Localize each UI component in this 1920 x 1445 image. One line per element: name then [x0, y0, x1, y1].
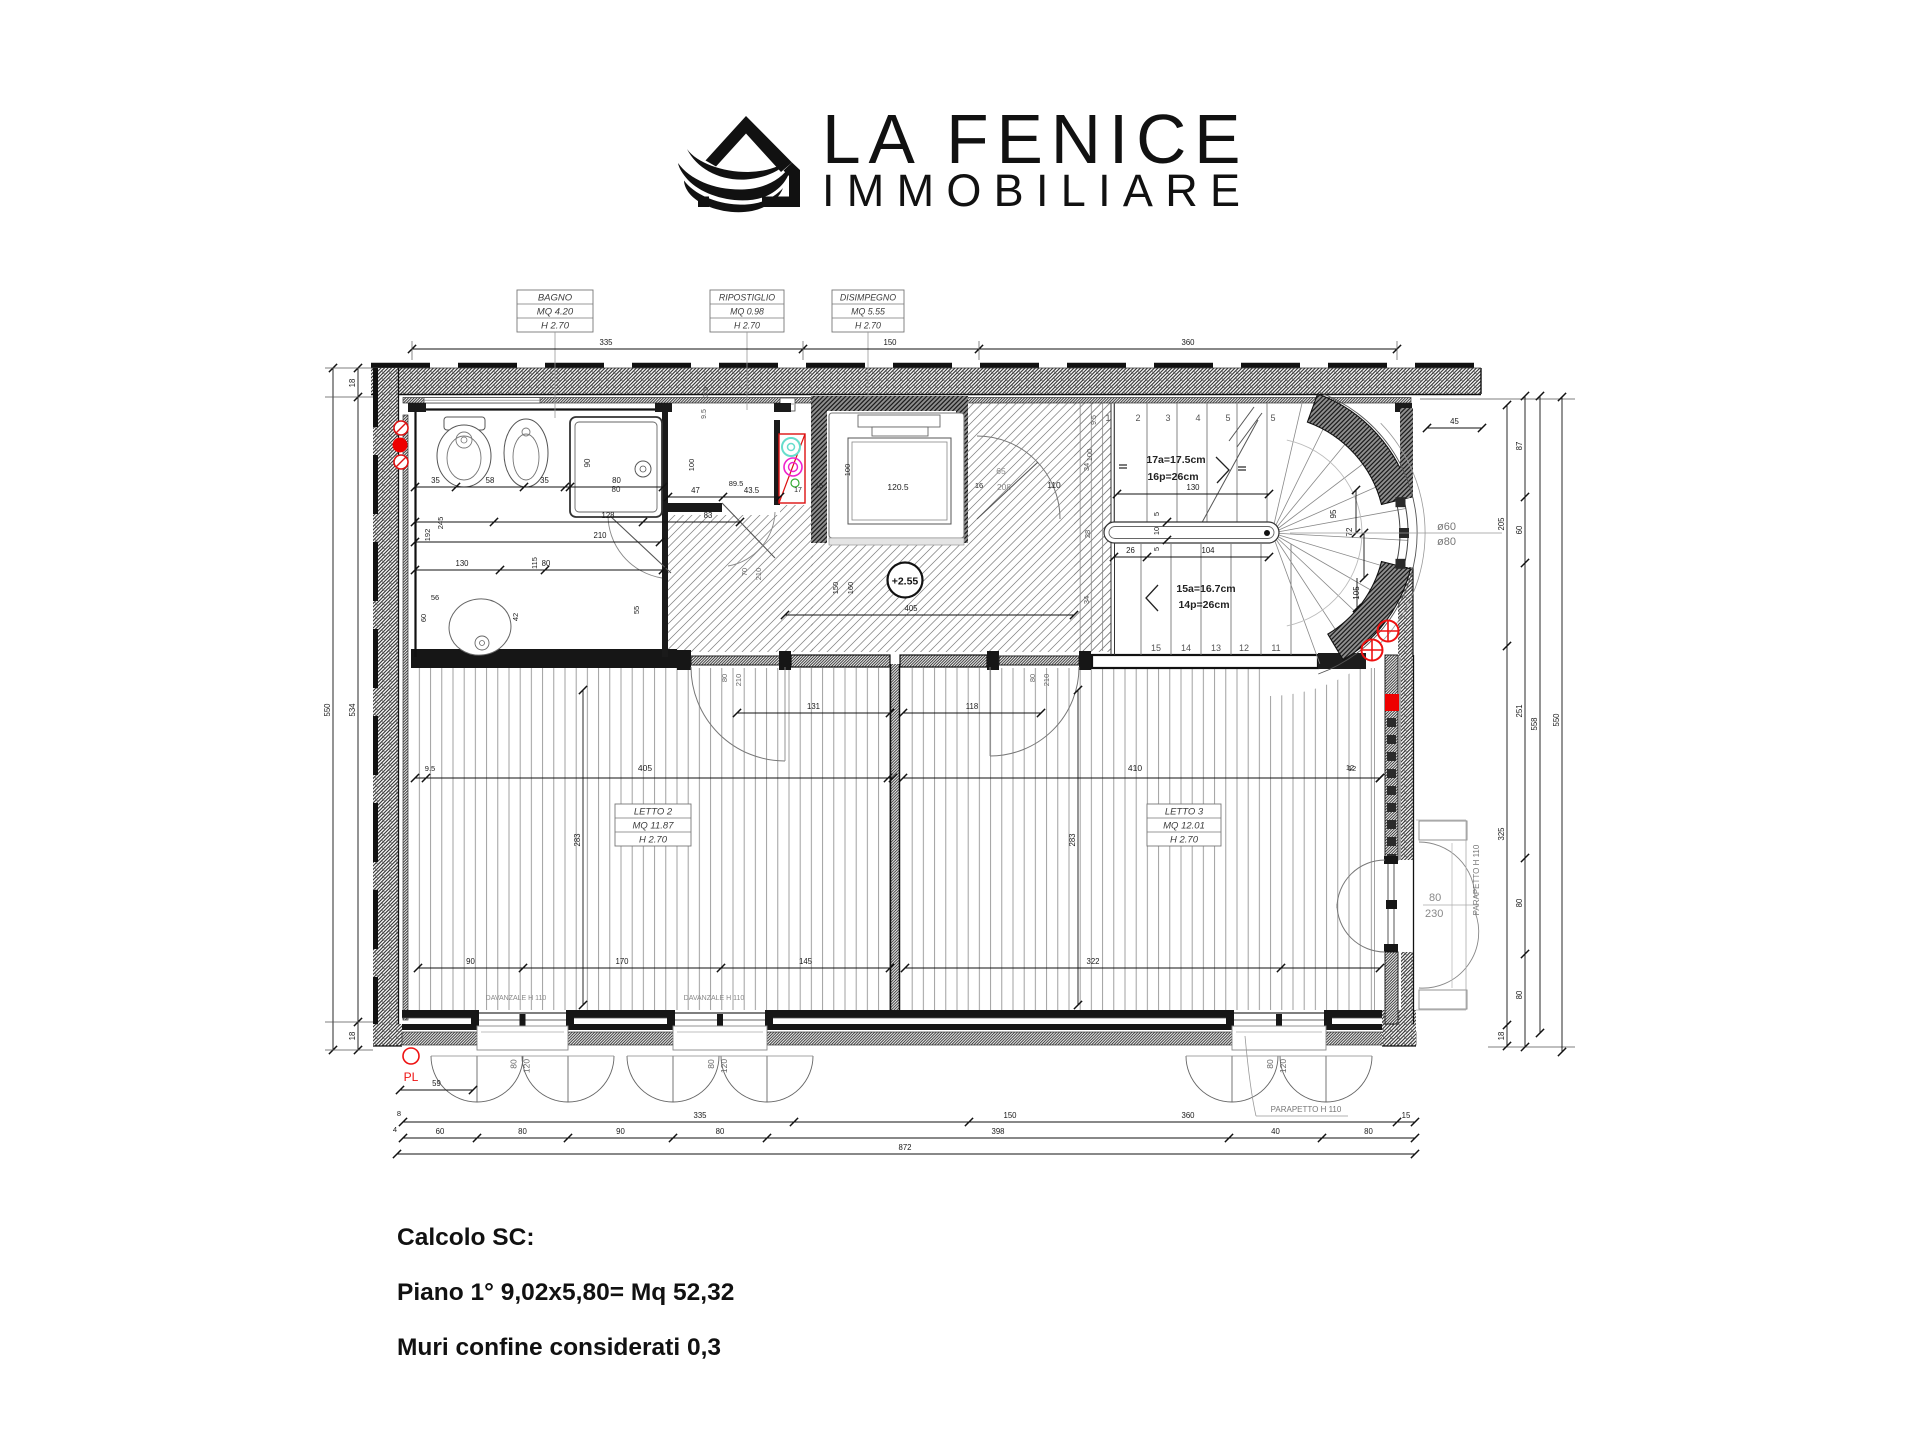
- svg-text:59: 59: [432, 1079, 441, 1088]
- svg-text:8: 8: [397, 1109, 401, 1118]
- svg-text:9.5: 9.5: [1091, 415, 1098, 425]
- svg-text:34: 34: [1082, 596, 1091, 604]
- svg-text:14p=26cm: 14p=26cm: [1178, 599, 1229, 611]
- svg-text:105: 105: [1352, 586, 1361, 600]
- svg-text:80: 80: [542, 559, 551, 568]
- svg-text:120: 120: [1278, 1059, 1288, 1073]
- svg-text:90: 90: [616, 1127, 625, 1136]
- svg-text:90: 90: [466, 957, 475, 966]
- svg-text:360: 360: [1181, 338, 1195, 347]
- svg-text:18: 18: [348, 379, 357, 388]
- svg-text:13: 13: [1211, 643, 1221, 653]
- svg-text:15a=16.7cm: 15a=16.7cm: [1176, 583, 1235, 595]
- svg-text:10: 10: [1152, 527, 1161, 535]
- svg-text:90: 90: [583, 458, 592, 467]
- svg-text:110: 110: [1047, 480, 1061, 490]
- svg-text:MQ 12.01: MQ 12.01: [1163, 821, 1205, 832]
- svg-text:335: 335: [693, 1111, 707, 1120]
- svg-text:60: 60: [1515, 525, 1524, 534]
- svg-text:325: 325: [1497, 827, 1506, 841]
- svg-text:12: 12: [1239, 643, 1249, 653]
- svg-text:45: 45: [1450, 417, 1459, 426]
- svg-text:15: 15: [815, 481, 823, 490]
- svg-text:115: 115: [530, 557, 539, 569]
- svg-text:534: 534: [348, 703, 357, 717]
- svg-text:DISIMPEGNO: DISIMPEGNO: [840, 293, 896, 303]
- svg-text:80: 80: [1515, 898, 1524, 907]
- svg-text:28: 28: [1083, 530, 1092, 538]
- svg-text:9.5: 9.5: [701, 409, 708, 419]
- svg-text:150: 150: [831, 582, 840, 595]
- svg-text:12: 12: [1346, 763, 1354, 772]
- svg-text:550: 550: [1552, 713, 1561, 727]
- svg-text:80: 80: [612, 476, 621, 485]
- svg-text:Muri confine considerati 0,3: Muri confine considerati 0,3: [397, 1334, 721, 1361]
- svg-text:192: 192: [423, 529, 432, 542]
- svg-text:5: 5: [1152, 547, 1161, 551]
- svg-text:17: 17: [794, 487, 802, 494]
- svg-text:MQ 11.87: MQ 11.87: [632, 821, 674, 832]
- svg-text:558: 558: [1530, 717, 1539, 730]
- svg-text:4: 4: [393, 1125, 397, 1134]
- svg-text:230: 230: [1425, 908, 1443, 920]
- svg-text:100: 100: [843, 464, 852, 477]
- svg-text:4: 4: [1195, 413, 1200, 423]
- svg-text:H 2.70: H 2.70: [734, 321, 760, 331]
- svg-text:2: 2: [1135, 413, 1140, 423]
- svg-text:5: 5: [1225, 413, 1230, 423]
- svg-text:MQ 5.55: MQ 5.55: [851, 307, 885, 317]
- svg-text:70: 70: [740, 568, 749, 576]
- svg-text:120: 120: [719, 1059, 729, 1073]
- svg-text:80: 80: [1265, 1059, 1275, 1069]
- svg-text:405: 405: [638, 763, 652, 773]
- svg-text:208: 208: [997, 482, 1011, 492]
- svg-text:+2.55: +2.55: [892, 576, 919, 588]
- svg-text:PL: PL: [404, 1070, 419, 1084]
- svg-text:322: 322: [1086, 957, 1099, 966]
- svg-text:89.5: 89.5: [729, 479, 744, 488]
- svg-text:130: 130: [1186, 483, 1200, 492]
- svg-text:398: 398: [991, 1127, 1004, 1136]
- svg-text:RIPOSTIGLIO: RIPOSTIGLIO: [719, 293, 775, 303]
- svg-text:251: 251: [1515, 704, 1524, 717]
- svg-text:65: 65: [996, 466, 1006, 476]
- svg-text:DAVANZALE H 110: DAVANZALE H 110: [486, 995, 547, 1002]
- svg-text:130: 130: [455, 559, 469, 568]
- svg-text:80: 80: [716, 1127, 725, 1136]
- svg-text:410: 410: [1128, 763, 1142, 773]
- svg-text:120: 120: [522, 1059, 532, 1073]
- svg-text:40: 40: [1271, 1127, 1280, 1136]
- svg-text:245: 245: [436, 517, 445, 530]
- svg-text:58: 58: [486, 476, 495, 485]
- svg-text:80: 80: [720, 674, 729, 682]
- svg-text:150: 150: [883, 338, 897, 347]
- svg-text:60: 60: [436, 1127, 445, 1136]
- svg-text:145: 145: [799, 957, 813, 966]
- svg-text:1: 1: [1105, 413, 1110, 423]
- svg-text:MQ 4.20: MQ 4.20: [537, 307, 574, 318]
- svg-text:5: 5: [1152, 512, 1161, 516]
- svg-text:150: 150: [1003, 1111, 1017, 1120]
- svg-text:360: 360: [1181, 1111, 1195, 1120]
- svg-text:Calcolo SC:: Calcolo SC:: [397, 1224, 535, 1251]
- svg-text:42: 42: [511, 613, 520, 621]
- svg-text:131: 131: [807, 702, 820, 711]
- svg-text:17a=17.5cm: 17a=17.5cm: [1146, 454, 1205, 466]
- svg-text:35: 35: [540, 476, 549, 485]
- svg-text:170: 170: [615, 957, 629, 966]
- svg-text:128: 128: [601, 511, 614, 520]
- svg-text:550: 550: [323, 703, 332, 717]
- svg-text:15: 15: [1402, 1111, 1411, 1120]
- svg-text:335: 335: [599, 338, 613, 347]
- svg-text:35: 35: [431, 476, 440, 485]
- svg-text:80: 80: [1429, 892, 1441, 904]
- svg-text:H 2.70: H 2.70: [1170, 835, 1199, 846]
- svg-text:210: 210: [593, 531, 607, 540]
- svg-text:H 2.70: H 2.70: [639, 835, 668, 846]
- svg-text:LETTO 3: LETTO 3: [1165, 807, 1204, 818]
- svg-text:IMMOBILIARE: IMMOBILIARE: [822, 165, 1252, 216]
- svg-text:283: 283: [573, 833, 582, 846]
- svg-text:14: 14: [1181, 643, 1191, 653]
- svg-text:BAGNO: BAGNO: [538, 293, 573, 304]
- svg-text:160: 160: [846, 582, 855, 595]
- svg-text:100: 100: [687, 459, 696, 472]
- svg-text:87: 87: [1515, 442, 1524, 451]
- svg-text:72: 72: [1345, 527, 1354, 536]
- svg-text:80: 80: [706, 1059, 716, 1069]
- svg-text:18: 18: [348, 1032, 357, 1041]
- svg-text:210: 210: [734, 674, 743, 687]
- svg-text:11: 11: [1271, 643, 1280, 653]
- svg-text:283: 283: [1068, 833, 1077, 846]
- svg-text:80: 80: [612, 485, 621, 494]
- svg-text:55: 55: [632, 606, 641, 614]
- svg-text:80: 80: [1515, 990, 1524, 999]
- svg-text:3.5: 3.5: [701, 387, 710, 397]
- svg-text:43.5: 43.5: [744, 486, 760, 495]
- svg-text:405: 405: [904, 604, 918, 613]
- svg-text:16: 16: [975, 481, 983, 490]
- svg-text:205: 205: [1497, 517, 1506, 531]
- svg-text:34: 34: [1082, 463, 1091, 471]
- svg-text:9.5: 9.5: [425, 764, 435, 773]
- svg-text:118: 118: [966, 702, 978, 711]
- svg-text:210: 210: [754, 568, 763, 581]
- svg-text:PARAPETTO H 110: PARAPETTO H 110: [1271, 1105, 1342, 1114]
- svg-text:95: 95: [1329, 509, 1338, 518]
- svg-text:LETTO 2: LETTO 2: [634, 807, 673, 818]
- svg-text:MQ 0.98: MQ 0.98: [730, 307, 764, 317]
- svg-text:56: 56: [431, 593, 439, 602]
- svg-text:26: 26: [1126, 546, 1135, 555]
- svg-text:83: 83: [704, 511, 713, 520]
- svg-text:3: 3: [1165, 413, 1170, 423]
- svg-text:60: 60: [419, 614, 428, 622]
- svg-text:H 2.70: H 2.70: [541, 321, 570, 332]
- svg-text:H 2.70: H 2.70: [855, 321, 881, 331]
- svg-text:Piano 1° 9,02x5,80= Mq 52,32: Piano 1° 9,02x5,80= Mq 52,32: [397, 1279, 734, 1306]
- svg-text:872: 872: [898, 1143, 911, 1152]
- svg-text:15: 15: [1151, 643, 1161, 653]
- svg-text:ø80: ø80: [1437, 536, 1456, 548]
- svg-text:5: 5: [1270, 413, 1275, 423]
- svg-text:47: 47: [691, 486, 700, 495]
- svg-text:120.5: 120.5: [887, 482, 909, 492]
- svg-text:ø60: ø60: [1437, 521, 1456, 533]
- svg-text:18: 18: [1497, 1032, 1506, 1041]
- svg-text:80: 80: [1364, 1127, 1373, 1136]
- svg-text:210: 210: [1042, 674, 1051, 687]
- svg-text:80: 80: [509, 1059, 519, 1069]
- svg-text:104: 104: [1201, 546, 1215, 555]
- svg-text:100: 100: [1085, 449, 1094, 462]
- svg-text:DAVANZALE H 110: DAVANZALE H 110: [684, 995, 745, 1002]
- svg-text:80: 80: [518, 1127, 527, 1136]
- svg-text:80: 80: [1028, 674, 1037, 682]
- svg-text:16p=26cm: 16p=26cm: [1147, 471, 1198, 483]
